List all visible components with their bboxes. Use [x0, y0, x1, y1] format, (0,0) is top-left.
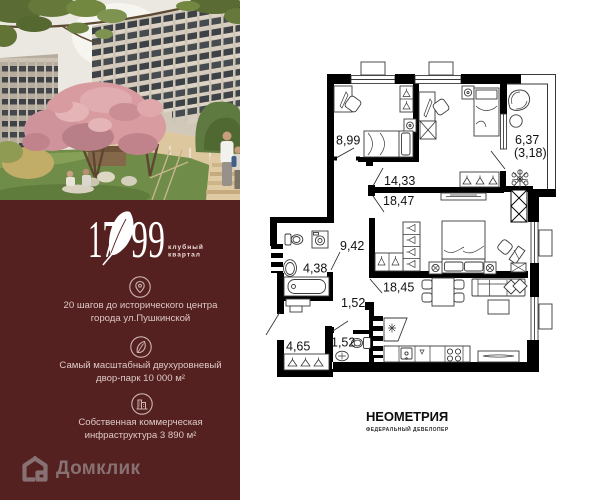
- svg-text:18,47: 18,47: [383, 194, 414, 208]
- svg-text:9,42: 9,42: [340, 239, 364, 253]
- svg-text:1,52: 1,52: [331, 336, 355, 350]
- svg-text:14,33: 14,33: [384, 174, 415, 188]
- svg-text:1,52: 1,52: [341, 296, 365, 310]
- svg-text:4,65: 4,65: [286, 340, 310, 354]
- svg-text:6,37: 6,37: [515, 133, 539, 147]
- svg-text:18,45: 18,45: [383, 281, 414, 295]
- svg-text:4,38: 4,38: [303, 262, 327, 276]
- svg-text:8,99: 8,99: [336, 134, 360, 148]
- svg-text:(3,18): (3,18): [514, 146, 547, 160]
